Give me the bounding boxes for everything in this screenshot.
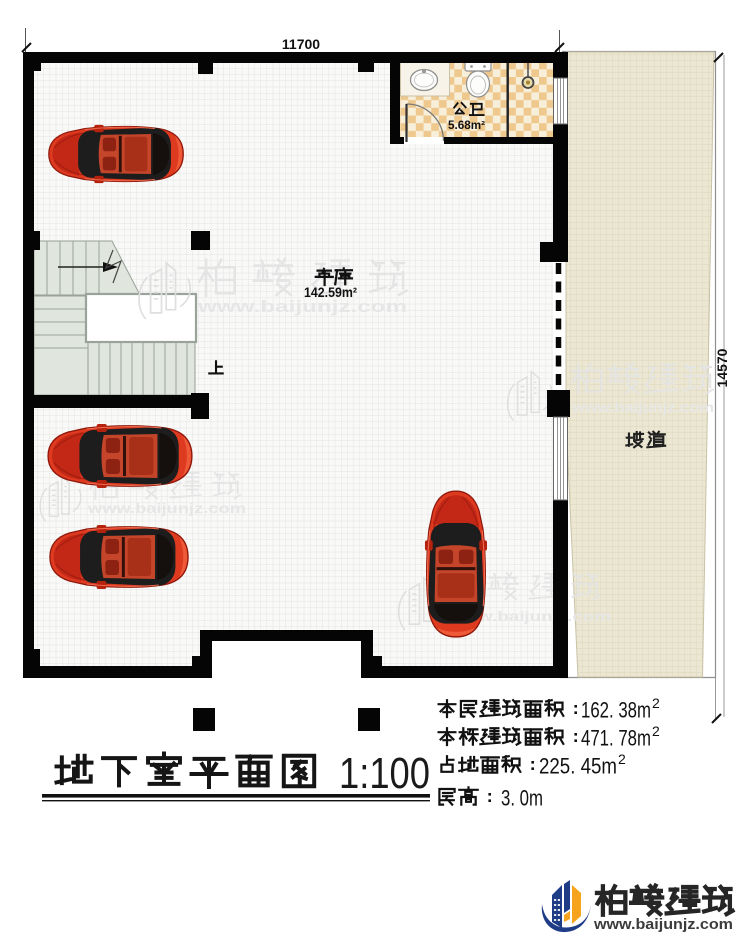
svg-text:2: 2 xyxy=(652,695,660,711)
svg-text:225. 45m: 225. 45m xyxy=(539,753,617,778)
svg-text:1:100: 1:100 xyxy=(339,749,430,798)
svg-text:3. 0m: 3. 0m xyxy=(501,785,543,810)
svg-text:5.68m²: 5.68m² xyxy=(448,120,485,132)
svg-text:www.baijunjz.com: www.baijunjz.com xyxy=(87,501,246,516)
svg-text:14570: 14570 xyxy=(714,348,730,387)
svg-text:142.59m²: 142.59m² xyxy=(304,284,357,300)
svg-text:2: 2 xyxy=(618,751,626,767)
svg-text:www.baijunjz.com: www.baijunjz.com xyxy=(593,916,733,933)
svg-text:www.baijunjz.com: www.baijunjz.com xyxy=(197,297,407,316)
svg-text:11700: 11700 xyxy=(282,36,320,52)
svg-text:2: 2 xyxy=(652,723,660,739)
svg-text:162. 38m: 162. 38m xyxy=(581,697,651,722)
svg-text:www.baijunjz.com: www.baijunjz.com xyxy=(571,400,714,415)
svg-text:471. 78m: 471. 78m xyxy=(581,725,651,750)
